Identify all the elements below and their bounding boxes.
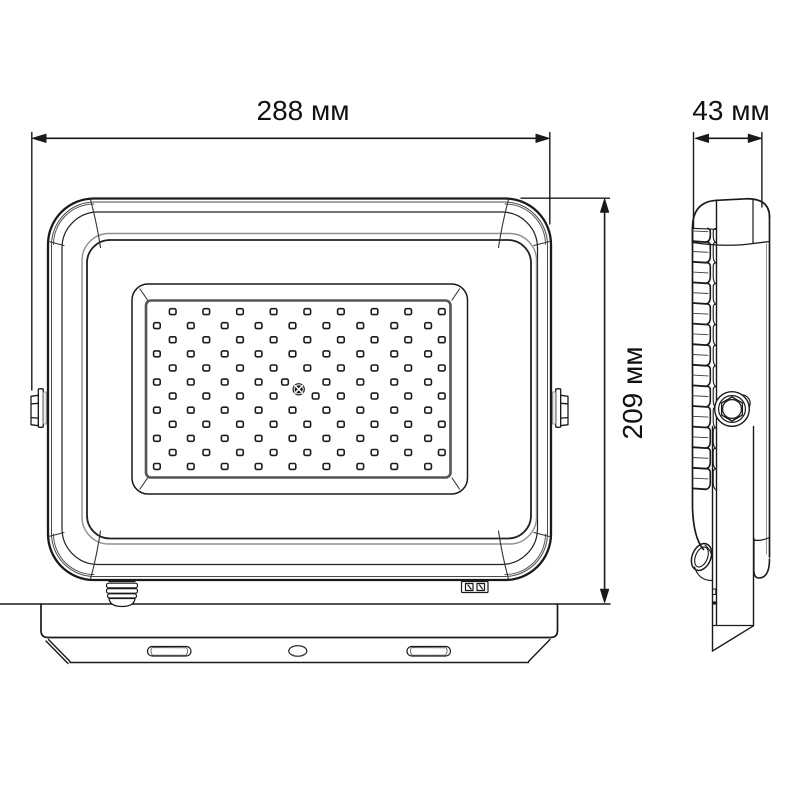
svg-text:43 мм: 43 мм bbox=[692, 95, 769, 126]
svg-text:209 мм: 209 мм bbox=[617, 347, 648, 440]
svg-text:288 мм: 288 мм bbox=[257, 95, 350, 126]
